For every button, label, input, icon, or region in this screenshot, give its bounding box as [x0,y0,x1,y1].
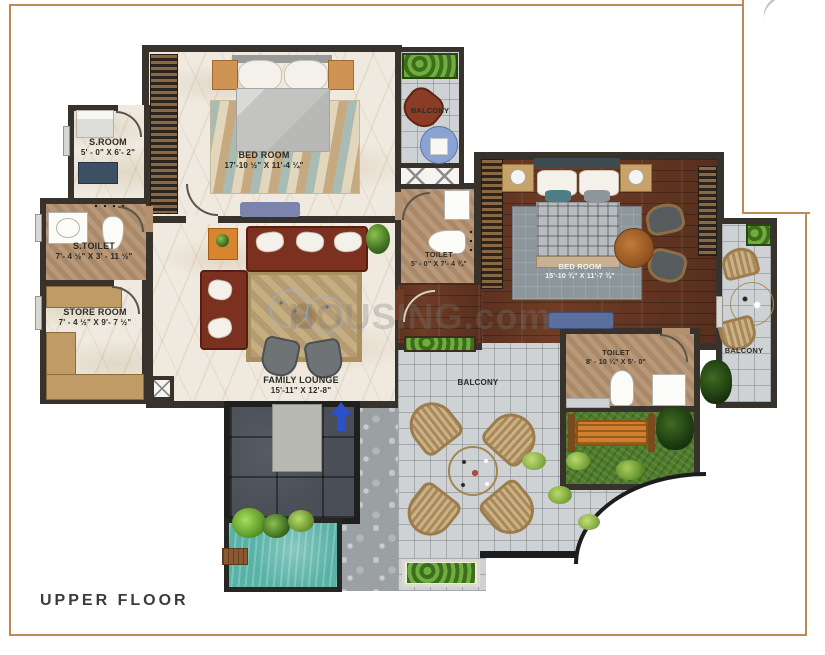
service-ledge-hatch [396,163,464,189]
nightstand-right-icon [328,60,354,90]
floor-title: UPPER FLOOR [40,592,189,610]
balconymain-planter-hedge [407,563,475,583]
label-stoilet: S.TOILET 7'- 4 ½" X 3' - 11 ½" [44,240,144,263]
bed2-headboard [534,158,620,168]
watermark: HOUSING.com [268,296,572,338]
label-balconymain: BALCONY [448,378,508,389]
label-toiletmid: TOILET 5' - 0" X 7'- 4 ¾" [404,250,474,270]
nightstand2-lamp-icon [510,169,526,185]
stoilet-sink-bowl [56,218,80,238]
swing-post-right [648,414,655,452]
entry-arrow-icon [330,402,352,432]
store-shelf-bottom [46,374,144,400]
label-storeroom: STORE ROOM 7' - 4 ½" X 9'- 7 ½" [48,306,142,329]
lawn-tuft-icon [616,460,644,480]
label-sroom: S.ROOM 5' - 0" X 6'- 2" [68,136,148,159]
lift-shaft-rect [272,404,322,472]
curve-tuft-icon [578,514,600,530]
balconytop-table-napkin [430,138,448,155]
label-bedroom1: BED ROOM 17'-10 ½" X 11'-4 ¼" [210,149,318,172]
sroom-bed-icon [76,110,114,138]
balconyright-door-slot [716,296,723,328]
curve-tuft-icon [522,452,546,470]
border-corner-notch [742,0,810,214]
pool-palm-icon [288,510,314,532]
pool-deck-plank [222,548,248,565]
floor-plan-canvas: BED ROOM 17'-10 ½" X 11'-4 ¼" S.ROOM 5' … [0,0,825,655]
stoilet-door-opening [145,206,153,232]
lounge-plant-icon [366,224,390,254]
pool-palm-icon [262,514,290,538]
pool-palm-icon [232,508,266,538]
label-familylounge: FAMILY LOUNGE 15'-11" X 12'-8" [244,374,358,397]
dining-table-icon [448,446,498,496]
sroom-desk-icon [78,162,118,184]
pebble-path-lower [336,520,402,591]
swing-bench-icon [576,420,648,446]
label-balconytop: BALCONY [404,106,456,116]
curve-tuft-icon [548,486,572,504]
bed2-accent-pillow [545,190,571,202]
bed1-foot-mat [240,202,300,217]
lawn-palm-icon [656,406,694,450]
swing-post-left [568,414,575,452]
label-balconyright: BALCONY [716,346,772,356]
toiletright-wc-icon [610,370,634,406]
store-shelf-top [46,286,122,308]
label-bedroom2: BED ROOM 15'-10 ¾" X 11'-7 ¾" [520,262,640,282]
bed2-accent-pillow [584,190,610,202]
balconymain-top-hedge [404,336,476,352]
nightstand2-lamp-icon [628,169,644,185]
bed1-duvet [236,88,330,152]
toiletmid-sink-icon [444,190,470,220]
balconyright-palm-icon [700,360,732,404]
wardrobe-slats-bedroom1 [150,54,178,214]
lounge-side-table-plant-icon [216,234,229,247]
lounge-shaft-hatch [150,376,174,401]
balconyright-hedge [746,224,772,246]
balconytop-hedge [402,53,458,79]
nightstand-left-icon [212,60,238,90]
toiletright-mat [566,398,610,408]
wardrobe-slats-bedroom2-right [698,166,717,256]
label-toiletright: TOILET 8' - 10 ¼" X 5'- 0" [574,348,658,368]
bed2-duvet-plaid [536,202,620,258]
balconymain-bottom-wall [480,551,576,558]
stoilet-window [35,214,42,242]
lawn-tuft-icon [566,452,590,470]
store-window [35,296,42,330]
bedroom1-door-opening [186,215,218,224]
wardrobe-slats-bedroom2-left [481,159,503,289]
toiletright-shower-icon [652,374,686,406]
